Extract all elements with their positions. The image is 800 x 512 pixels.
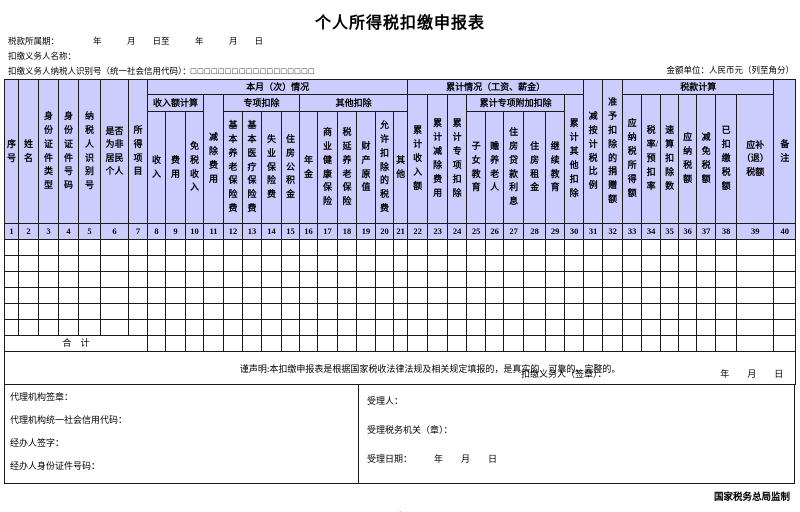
empty-data-cell (448, 320, 467, 336)
empty-data-cell (565, 288, 584, 304)
col-number: 2 (19, 224, 39, 240)
empty-data-cell (39, 304, 59, 320)
group-special-deduction: 专项扣除 (224, 95, 300, 112)
empty-data-cell (204, 304, 224, 320)
empty-data-cell (129, 304, 148, 320)
empty-data-cell (243, 304, 262, 320)
empty-data-cell (716, 304, 737, 320)
empty-data-cell (661, 304, 679, 320)
acceptor-label: 受理人： (367, 395, 794, 407)
col-header-reduced-tax-ratio: 减按计税比例 (584, 80, 603, 224)
empty-data-cell (243, 240, 262, 256)
col-number: 33 (623, 224, 642, 240)
empty-data-cell (376, 288, 394, 304)
empty-data-cell (262, 304, 282, 320)
empty-data-cell (737, 272, 774, 288)
summary-empty-cell (546, 336, 565, 352)
summary-empty-cell (486, 336, 504, 352)
empty-data-cell (318, 304, 338, 320)
col-number: 14 (262, 224, 282, 240)
empty-data-cell (774, 272, 796, 288)
declaration-text: 谨声明:本扣缴申报表是根据国家税收法律法规及相关规定填报的，是真实的、可靠的、完… (5, 361, 795, 375)
tax-form-page: 个人所得税扣缴申报表 税款所属期：年 月 日至 年 月 日 扣缴义务人名称： 扣… (0, 0, 800, 512)
empty-data-cell (376, 272, 394, 288)
col-number: 38 (716, 224, 737, 240)
empty-data-cell (338, 304, 357, 320)
col-header-cum-income: 累计收入额 (408, 95, 428, 224)
form-meta: 税款所属期：年 月 日至 年 月 日 扣缴义务人名称： 扣缴义务人纳税人识别号（… (8, 34, 794, 79)
group-other-deduction: 其他扣除 (300, 95, 408, 112)
col-number: 40 (774, 224, 796, 240)
empty-data-cell (486, 272, 504, 288)
empty-data-cell (546, 240, 565, 256)
col-number: 17 (318, 224, 338, 240)
summary-empty-cell (603, 336, 623, 352)
col-number: 28 (524, 224, 546, 240)
col-header-income-item: 所得项目 (129, 80, 148, 224)
col-header-remarks: 备注 (774, 80, 796, 224)
empty-data-cell (408, 240, 428, 256)
col-header-unemployment-insurance: 失业保险费 (262, 112, 282, 224)
empty-data-cell (300, 288, 318, 304)
empty-data-cell (408, 304, 428, 320)
empty-data-cell (737, 304, 774, 320)
col-number: 29 (546, 224, 565, 240)
summary-empty-cell (394, 336, 408, 352)
table-row (5, 240, 796, 256)
empty-data-cell (565, 304, 584, 320)
empty-data-cell (79, 256, 101, 272)
empty-data-cell (679, 240, 697, 256)
empty-data-cell (448, 240, 467, 256)
empty-data-cell (697, 320, 716, 336)
empty-data-cell (584, 288, 603, 304)
empty-data-cell (716, 320, 737, 336)
empty-data-cell (584, 240, 603, 256)
col-header-elderly-support: 赡养老人 (486, 112, 504, 224)
col-header-seq: 序号 (5, 80, 19, 224)
empty-data-cell (19, 288, 39, 304)
empty-data-cell (524, 272, 546, 288)
empty-data-cell (129, 272, 148, 288)
empty-data-cell (504, 272, 524, 288)
col-number: 36 (679, 224, 697, 240)
empty-data-cell (524, 320, 546, 336)
empty-data-cell (300, 320, 318, 336)
empty-data-cell (716, 240, 737, 256)
empty-data-cell (166, 240, 186, 256)
col-number: 11 (204, 224, 224, 240)
col-header-fee: 费用 (166, 112, 186, 224)
empty-data-cell (467, 320, 486, 336)
col-number: 8 (148, 224, 166, 240)
col-header-housing-fund: 住房公积金 (282, 112, 300, 224)
empty-data-cell (59, 288, 79, 304)
empty-data-cell (774, 256, 796, 272)
col-number: 26 (486, 224, 504, 240)
summary-empty-cell (697, 336, 716, 352)
summary-empty-cell (642, 336, 661, 352)
table-row (5, 272, 796, 288)
empty-data-cell (186, 240, 204, 256)
withholder-signature-label: 扣缴义务人（签章）： (521, 369, 607, 380)
empty-data-cell (338, 256, 357, 272)
summary-empty-cell (224, 336, 243, 352)
summary-empty-cell (467, 336, 486, 352)
empty-data-cell (282, 256, 300, 272)
empty-data-cell (697, 304, 716, 320)
col-header-nonresident: 是否为非居民个人 (101, 80, 129, 224)
empty-data-cell (697, 240, 716, 256)
empty-data-cell (262, 240, 282, 256)
summary-empty-cell (504, 336, 524, 352)
empty-data-cell (101, 304, 129, 320)
col-header-quick-deduction: 速算扣除数 (661, 95, 679, 224)
empty-data-cell (467, 304, 486, 320)
empty-data-cell (148, 240, 166, 256)
empty-data-cell (661, 256, 679, 272)
empty-data-cell (79, 320, 101, 336)
agency-section: 代理机构签章： 代理机构统一社会信用代码： 经办人签字： 经办人身份证件号码： (5, 385, 359, 484)
col-header-cum-other-deduction: 累计其他扣除 (565, 95, 584, 224)
empty-data-cell (5, 288, 19, 304)
empty-data-cell (565, 320, 584, 336)
empty-data-cell (338, 240, 357, 256)
empty-data-cell (504, 304, 524, 320)
empty-data-cell (467, 256, 486, 272)
empty-data-cell (642, 288, 661, 304)
empty-data-cell (448, 256, 467, 272)
empty-data-cell (224, 272, 243, 288)
page-title: 个人所得税扣缴申报表 (0, 0, 800, 32)
empty-data-cell (186, 256, 204, 272)
col-header-id-type: 身份证件类型 (39, 80, 59, 224)
col-header-cum-deduction-expense: 累计减除费用 (428, 95, 448, 224)
empty-data-cell (262, 272, 282, 288)
empty-data-cell (467, 272, 486, 288)
empty-data-cell (448, 288, 467, 304)
empty-data-cell (546, 256, 565, 272)
empty-data-cell (59, 304, 79, 320)
col-number: 6 (101, 224, 129, 240)
empty-data-cell (318, 288, 338, 304)
col-number: 22 (408, 224, 428, 240)
empty-data-cell (486, 240, 504, 256)
empty-data-cell (79, 288, 101, 304)
empty-data-cell (5, 304, 19, 320)
empty-data-cell (300, 240, 318, 256)
empty-data-cell (737, 288, 774, 304)
summary-empty-cell (376, 336, 394, 352)
empty-data-cell (166, 320, 186, 336)
col-number: 35 (661, 224, 679, 240)
empty-data-cell (565, 240, 584, 256)
empty-data-cell (394, 256, 408, 272)
empty-data-cell (148, 288, 166, 304)
agency-seal-label: 代理机构签章： (10, 391, 358, 403)
empty-data-cell (338, 288, 357, 304)
empty-data-cell (716, 256, 737, 272)
empty-data-cell (394, 288, 408, 304)
currency-unit-note: 金额单位：人民币元（列至角分） (666, 63, 794, 78)
summary-empty-cell (737, 336, 774, 352)
summary-empty-cell (262, 336, 282, 352)
empty-data-cell (148, 320, 166, 336)
col-header-deduction-expense: 减除费用 (204, 95, 224, 224)
empty-data-cell (338, 272, 357, 288)
empty-data-cell (262, 320, 282, 336)
summary-empty-cell (774, 336, 796, 352)
empty-data-cell (224, 320, 243, 336)
tax-authority-label: 受理税务机关（章）： (367, 424, 794, 436)
empty-data-cell (262, 256, 282, 272)
empty-data-cell (282, 240, 300, 256)
empty-data-cell (148, 272, 166, 288)
empty-data-cell (19, 320, 39, 336)
empty-data-cell (224, 304, 243, 320)
empty-data-cell (467, 288, 486, 304)
empty-data-cell (243, 256, 262, 272)
col-number: 7 (129, 224, 148, 240)
summary-empty-cell (282, 336, 300, 352)
col-header-commercial-health-insurance: 商业健康保险 (318, 112, 338, 224)
empty-data-cell (737, 240, 774, 256)
col-header-child-education: 子女教育 (467, 112, 486, 224)
summary-empty-cell (338, 336, 357, 352)
empty-data-cell (59, 320, 79, 336)
empty-data-cell (428, 256, 448, 272)
col-header-continuing-education: 继续教育 (546, 112, 565, 224)
empty-data-cell (774, 240, 796, 256)
empty-data-cell (204, 272, 224, 288)
table-row (5, 256, 796, 272)
empty-data-cell (300, 272, 318, 288)
empty-data-cell (39, 272, 59, 288)
empty-data-cell (101, 288, 129, 304)
empty-data-cell (39, 256, 59, 272)
empty-data-cell (623, 320, 642, 336)
col-header-housing-rent: 住房租金 (524, 112, 546, 224)
col-header-cum-special-deduction: 累计专项扣除 (448, 95, 467, 224)
summary-empty-cell (204, 336, 224, 352)
empty-data-cell (428, 240, 448, 256)
empty-data-cell (679, 304, 697, 320)
empty-data-cell (524, 256, 546, 272)
empty-data-cell (603, 256, 623, 272)
empty-data-cell (338, 320, 357, 336)
empty-data-cell (5, 240, 19, 256)
col-number: 9 (166, 224, 186, 240)
table-row (5, 288, 796, 304)
col-header-property-original-value: 财产原值 (357, 112, 376, 224)
empty-data-cell (79, 240, 101, 256)
col-number: 30 (565, 224, 584, 240)
empty-data-cell (565, 272, 584, 288)
col-header-name: 姓名 (19, 80, 39, 224)
empty-data-cell (584, 320, 603, 336)
withholder-name-line: 扣缴义务人名称： (8, 49, 794, 64)
empty-data-cell (716, 288, 737, 304)
empty-data-cell (408, 288, 428, 304)
empty-data-cell (186, 320, 204, 336)
empty-data-cell (318, 240, 338, 256)
col-number: 1 (5, 224, 19, 240)
col-header-tax-rate: 税率/预扣率 (642, 95, 661, 224)
empty-data-cell (357, 272, 376, 288)
group-income-calc: 收入额计算 (148, 95, 204, 112)
col-header-mortgage-interest: 住房贷款利息 (504, 112, 524, 224)
col-number: 37 (697, 224, 716, 240)
empty-data-cell (661, 320, 679, 336)
empty-data-cell (546, 320, 565, 336)
summary-empty-cell (148, 336, 166, 352)
empty-data-cell (737, 320, 774, 336)
empty-data-cell (224, 240, 243, 256)
empty-data-cell (376, 240, 394, 256)
empty-data-cell (101, 272, 129, 288)
empty-data-cell (716, 272, 737, 288)
col-header-medical-insurance: 基本医疗保险费 (243, 112, 262, 224)
col-header-annuity: 年金 (300, 112, 318, 224)
empty-data-cell (59, 240, 79, 256)
empty-data-cell (39, 320, 59, 336)
empty-data-cell (408, 272, 428, 288)
col-header-taxpayer-id: 纳税人识别号 (79, 80, 101, 224)
empty-data-cell (584, 304, 603, 320)
empty-data-cell (661, 240, 679, 256)
col-number: 13 (243, 224, 262, 240)
empty-data-cell (79, 304, 101, 320)
empty-data-cell (166, 256, 186, 272)
empty-data-cell (101, 256, 129, 272)
col-number: 4 (59, 224, 79, 240)
empty-data-cell (394, 304, 408, 320)
declaration-table: 序号 姓名 身份证件类型 身份证件号码 纳税人识别号 是否为非居民个人 所得项目… (4, 79, 796, 385)
summary-empty-cell (166, 336, 186, 352)
group-cumulative: 累计情况（工资、薪金） (408, 80, 584, 95)
empty-data-cell (679, 320, 697, 336)
empty-data-cell (679, 256, 697, 272)
col-header-deductible-taxes: 允许扣除的税费 (376, 112, 394, 224)
col-number: 10 (186, 224, 204, 240)
col-number: 24 (448, 224, 467, 240)
empty-data-cell (603, 272, 623, 288)
agency-code-label: 代理机构统一社会信用代码： (10, 414, 358, 426)
empty-data-cell (282, 272, 300, 288)
col-header-taxable-income: 应纳税所得额 (623, 95, 642, 224)
col-number: 31 (584, 224, 603, 240)
empty-data-cell (357, 288, 376, 304)
col-header-tax-reduction: 减免税额 (697, 95, 716, 224)
empty-data-cell (300, 304, 318, 320)
empty-data-cell (224, 288, 243, 304)
empty-data-cell (394, 272, 408, 288)
empty-data-cell (101, 240, 129, 256)
empty-data-cell (376, 320, 394, 336)
empty-data-cell (19, 272, 39, 288)
empty-data-cell (504, 256, 524, 272)
empty-data-cell (166, 288, 186, 304)
empty-data-cell (186, 272, 204, 288)
empty-data-cell (357, 256, 376, 272)
col-header-pension-insurance: 基本养老保险费 (224, 112, 243, 224)
col-number: 27 (504, 224, 524, 240)
declaration-row: 谨声明:本扣缴申报表是根据国家税收法律法规及相关规定填报的，是真实的、可靠的、完… (5, 352, 796, 385)
col-header-other: 其他 (394, 112, 408, 224)
empty-data-cell (357, 320, 376, 336)
empty-data-cell (623, 256, 642, 272)
empty-data-cell (39, 288, 59, 304)
empty-data-cell (129, 288, 148, 304)
col-number: 3 (39, 224, 59, 240)
empty-data-cell (661, 288, 679, 304)
table-row (5, 304, 796, 320)
summary-empty-cell (661, 336, 679, 352)
empty-data-cell (19, 304, 39, 320)
withholder-id-line: 扣缴义务人纳税人识别号（统一社会信用代码）：□□□□□□□□□□□□□□□□□□… (8, 64, 794, 79)
col-number: 18 (338, 224, 357, 240)
empty-data-cell (524, 240, 546, 256)
summary-empty-cell (524, 336, 546, 352)
empty-data-cell (5, 320, 19, 336)
empty-data-cell (584, 272, 603, 288)
empty-data-cell (546, 272, 565, 288)
empty-data-cell (243, 320, 262, 336)
group-tax-calc: 税款计算 (623, 80, 774, 95)
empty-data-cell (467, 240, 486, 256)
table-row (5, 320, 796, 336)
empty-data-cell (376, 304, 394, 320)
tax-period-label: 税款所属期： (8, 36, 59, 46)
empty-data-cell (394, 320, 408, 336)
empty-data-cell (486, 304, 504, 320)
empty-data-cell (224, 256, 243, 272)
summary-empty-cell (408, 336, 428, 352)
empty-data-cell (59, 256, 79, 272)
empty-data-cell (204, 320, 224, 336)
summary-empty-cell (565, 336, 584, 352)
empty-data-cell (697, 256, 716, 272)
empty-data-cell (394, 240, 408, 256)
empty-data-cell (603, 304, 623, 320)
col-number: 23 (428, 224, 448, 240)
empty-data-cell (524, 304, 546, 320)
col-number: 16 (300, 224, 318, 240)
col-header-donation-deduction: 准予扣除的捐赠额 (603, 80, 623, 224)
empty-data-cell (148, 304, 166, 320)
summary-empty-cell (243, 336, 262, 352)
empty-data-cell (504, 320, 524, 336)
empty-data-cell (39, 240, 59, 256)
empty-data-cell (243, 288, 262, 304)
summary-empty-cell (428, 336, 448, 352)
signature-date-placeholder: 年 月 日 (720, 369, 783, 380)
col-header-income: 收入 (148, 112, 166, 224)
col-number: 12 (224, 224, 243, 240)
empty-data-cell (486, 256, 504, 272)
empty-data-cell (565, 256, 584, 272)
empty-data-cell (357, 240, 376, 256)
empty-data-cell (5, 256, 19, 272)
empty-data-cell (408, 320, 428, 336)
issuer-note: 国家税务总局监制 (0, 489, 800, 503)
col-number: 39 (737, 224, 774, 240)
empty-data-cell (697, 288, 716, 304)
agent-id-label: 经办人身份证件号码： (10, 460, 358, 472)
col-number: 5 (79, 224, 101, 240)
empty-data-cell (376, 256, 394, 272)
empty-data-cell (101, 320, 129, 336)
